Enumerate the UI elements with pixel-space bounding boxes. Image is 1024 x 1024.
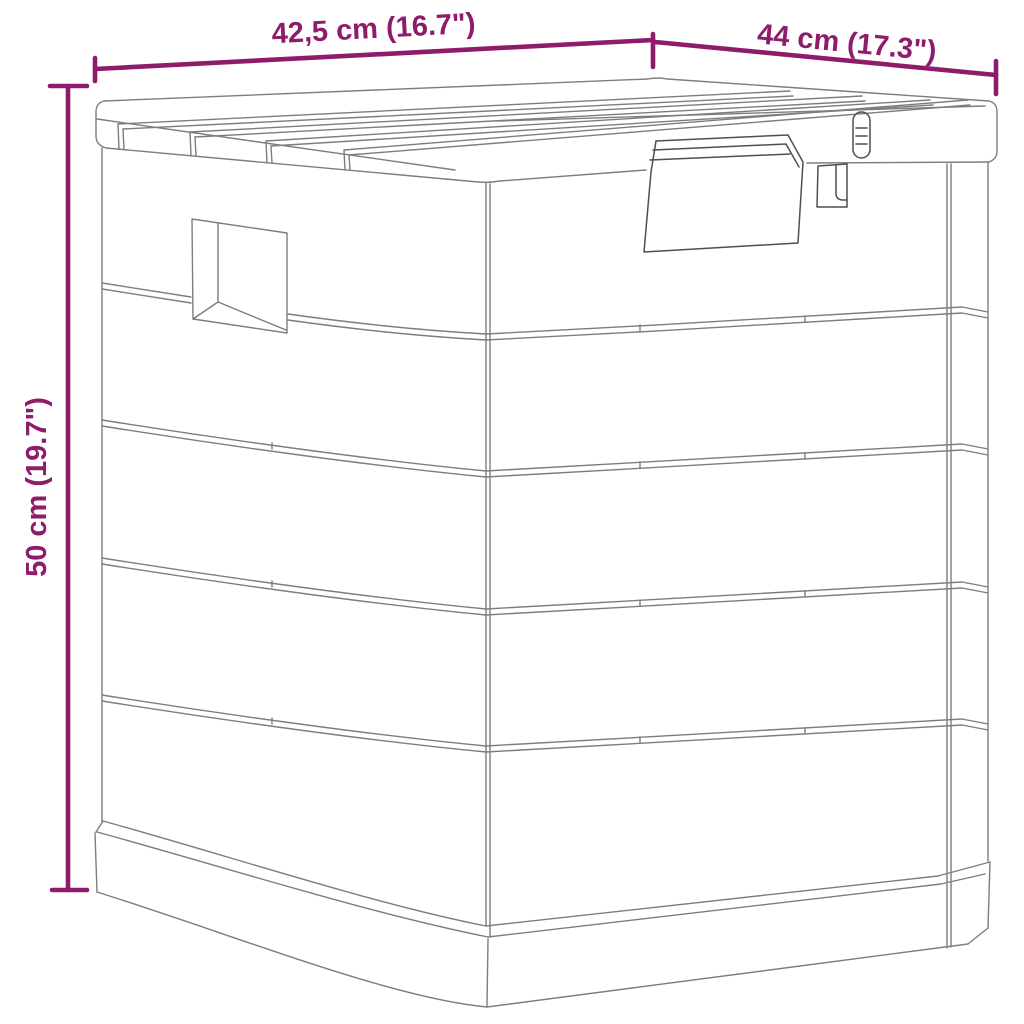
lock-tab-inner-edge bbox=[836, 165, 847, 200]
handle-recess-inner-wall bbox=[218, 302, 286, 330]
body bbox=[102, 148, 988, 936]
front-width-label: 42,5 cm (16.7") bbox=[271, 8, 476, 51]
body-groove bbox=[102, 564, 988, 615]
plinth-top-edge bbox=[488, 874, 985, 937]
storage-box-diagram: 42,5 cm (16.7") 44 cm (17.3") 50 cm (19.… bbox=[0, 0, 1024, 1024]
body-bottom-edge bbox=[103, 821, 486, 926]
lid-front-crease-left bbox=[97, 119, 455, 170]
lid-plank-end-tick bbox=[271, 146, 272, 163]
body-groove bbox=[102, 289, 191, 303]
lock-slot bbox=[853, 112, 870, 158]
lid bbox=[96, 78, 997, 182]
base-plinth bbox=[95, 821, 990, 1007]
lid-plank-end-tick bbox=[195, 137, 196, 156]
body-groove bbox=[288, 307, 988, 334]
lid-plank-end-tick bbox=[190, 132, 191, 156]
lid-plank-end-tick bbox=[266, 141, 267, 163]
lid-plank-end-tick bbox=[349, 155, 350, 170]
height-label: 50 cm (19.7") bbox=[21, 397, 53, 577]
lid-plank-end-tick bbox=[123, 129, 124, 149]
plinth-right-bevel bbox=[938, 862, 990, 876]
body-groove bbox=[102, 426, 988, 477]
plinth-right-bevel bbox=[968, 928, 988, 944]
product-dimension-diagram: 42,5 cm (16.7") 44 cm (17.3") 50 cm (19.… bbox=[0, 0, 1024, 1024]
lid-plank-end-tick bbox=[118, 124, 119, 149]
plinth-bottom-edge bbox=[487, 944, 968, 1007]
lid-plank-groove bbox=[195, 101, 865, 137]
handle-recess-inner-wall bbox=[193, 302, 218, 319]
lid-plank-end-tick bbox=[344, 150, 345, 170]
plinth-right-edge bbox=[988, 862, 990, 928]
plinth-left-bevel bbox=[96, 821, 103, 832]
handle-recess bbox=[192, 219, 287, 333]
latch-area bbox=[644, 112, 870, 252]
plinth-bottom-edge bbox=[97, 892, 487, 1007]
latch-recess-step bbox=[653, 144, 799, 167]
latch-recess-outline bbox=[644, 135, 803, 252]
latch-recess-step bbox=[650, 154, 790, 160]
handle-recess-outline bbox=[192, 219, 287, 333]
lid-plank-groove bbox=[190, 96, 862, 132]
body-groove bbox=[102, 283, 191, 297]
plinth-top-edge bbox=[97, 832, 488, 937]
body-groove bbox=[102, 701, 988, 752]
plinth-corner-line bbox=[487, 939, 488, 1006]
lid-plank-groove bbox=[123, 96, 793, 129]
body-bottom-edge bbox=[486, 876, 938, 926]
dimension-height bbox=[50, 86, 87, 890]
plinth-left-edge bbox=[95, 833, 97, 892]
storage-box-illustration bbox=[95, 78, 997, 1007]
